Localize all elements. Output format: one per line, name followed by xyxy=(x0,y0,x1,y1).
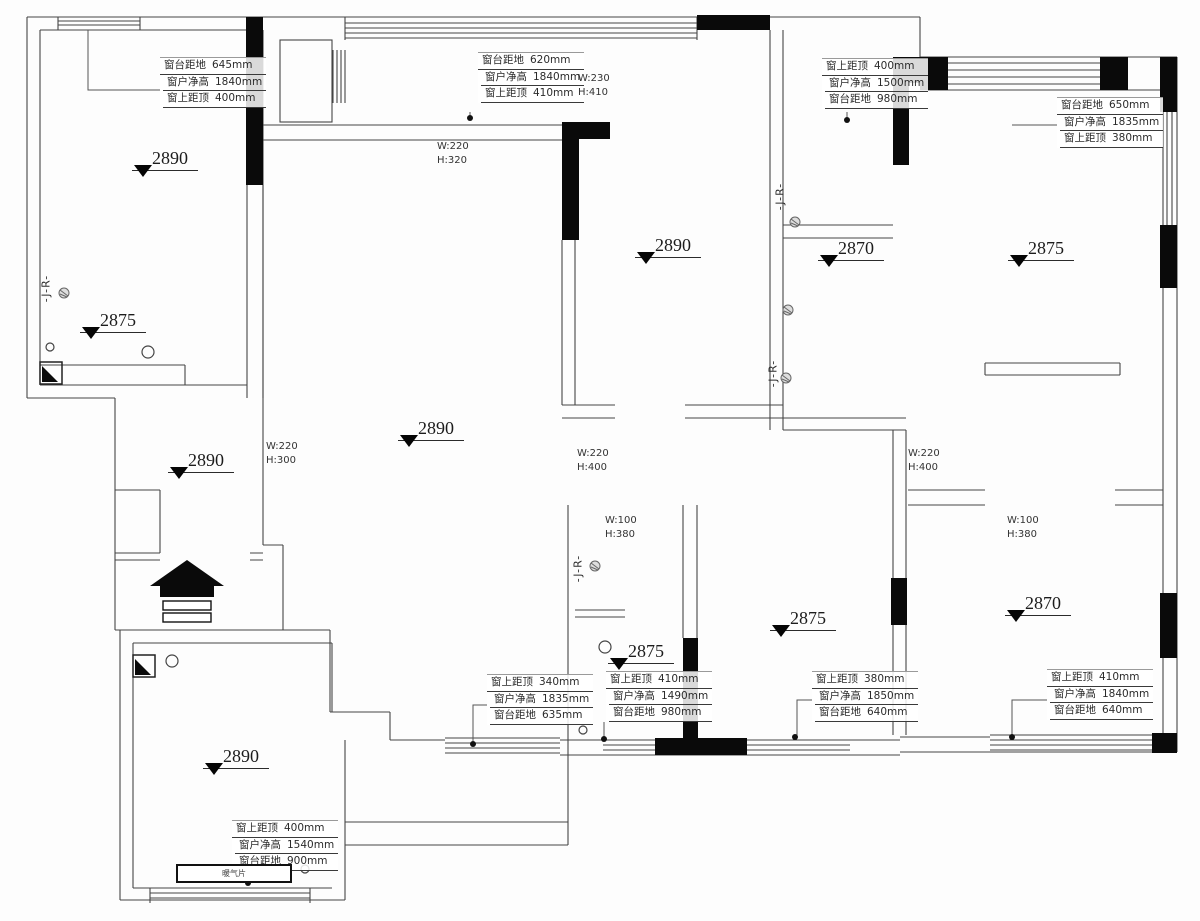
annotation-value: 410mm xyxy=(533,87,574,99)
ceiling-height-marker: 2870 xyxy=(1005,593,1071,616)
annotation-label: 窗台距地 xyxy=(482,54,524,66)
ceiling-height-marker: 2890 xyxy=(398,418,464,441)
annotation-label: 窗户净高 xyxy=(485,71,527,83)
ceiling-height-marker: 2890 xyxy=(203,746,269,769)
beam-width: W:220 xyxy=(437,141,469,152)
annotation-value: 980mm xyxy=(661,706,702,718)
jr-riser-symbol: -J-R- xyxy=(570,538,586,598)
window-annotation-top-right: 窗台距地650mm 窗户净高1835mm 窗上距顶380mm xyxy=(1057,97,1163,148)
annotation-value: 1850mm xyxy=(867,690,914,702)
window-annotation-bottom-study: 窗上距顶410mm 窗户净高1490mm 窗台距地980mm xyxy=(606,671,712,722)
window-annotation-top-left: 窗台距地645mm 窗户净高1840mm 窗上距顶400mm xyxy=(160,57,266,108)
window-annotation-bottom-right: 窗上距顶410mm 窗户净高1840mm 窗台距地640mm xyxy=(1047,669,1153,720)
ceiling-height-marker: 2890 xyxy=(132,148,198,171)
jr-riser-symbol: -J-R- xyxy=(765,343,781,403)
annotation-label: 窗户净高 xyxy=(1064,116,1106,128)
jr-label: -J-R- xyxy=(572,554,585,582)
beam-width: W:100 xyxy=(1007,515,1039,526)
entry-arrow-icon xyxy=(150,560,224,622)
annotation-value: 645mm xyxy=(212,59,253,71)
ceiling-height-marker: 2875 xyxy=(608,641,674,664)
elevation-triangle-icon xyxy=(610,658,628,670)
ceiling-height-marker: 2875 xyxy=(1008,238,1074,261)
annotation-label: 窗户净高 xyxy=(1054,688,1096,700)
beam-width: W:220 xyxy=(908,448,940,459)
annotation-label: 窗台距地 xyxy=(1061,99,1103,111)
ceiling-height-marker: 2875 xyxy=(80,310,146,333)
structural-walls xyxy=(246,15,1177,755)
elevation-triangle-icon xyxy=(1007,610,1025,622)
window-annotation-top-center: 窗台距地620mm 窗户净高1840mm 窗上距顶410mm xyxy=(478,52,584,103)
annotation-label: 窗上距顶 xyxy=(1064,132,1106,144)
annotation-label: 窗户净高 xyxy=(167,76,209,88)
annotation-label: 窗户净高 xyxy=(819,690,861,702)
window-annotation-bottom-center-left: 窗上距顶340mm 窗户净高1835mm 窗台距地635mm xyxy=(487,674,593,725)
beam-height: H:400 xyxy=(577,462,607,473)
beam-label: W:100H:380 xyxy=(605,514,637,541)
annotation-label: 窗上距顶 xyxy=(826,60,868,72)
annotation-label: 窗户净高 xyxy=(494,693,536,705)
annotation-value: 1500mm xyxy=(877,77,924,89)
radiator-fixture: 暖气片 xyxy=(176,864,292,883)
leader-dots xyxy=(245,115,1015,886)
beam-height: H:300 xyxy=(266,455,296,466)
elevation-triangle-icon xyxy=(205,763,223,775)
ceiling-height-marker: 2890 xyxy=(168,450,234,473)
beam-label: W:100H:380 xyxy=(1007,514,1039,541)
annotation-value: 400mm xyxy=(874,60,915,72)
elevation-triangle-icon xyxy=(820,255,838,267)
beam-label: W:220H:300 xyxy=(266,440,298,467)
annotation-value: 1540mm xyxy=(287,839,334,851)
annotation-label: 窗上距顶 xyxy=(1051,671,1093,683)
beam-label: W:220H:320 xyxy=(437,140,469,167)
window-annotation-bottom-left-room: 窗上距顶400mm 窗户净高1540mm 窗台距地900mm xyxy=(232,820,338,871)
annotation-value: 1840mm xyxy=(215,76,262,88)
annotation-value: 620mm xyxy=(530,54,571,66)
elevation-triangle-icon xyxy=(637,252,655,264)
elevation-triangle-icon xyxy=(82,327,100,339)
annotation-label: 窗上距顶 xyxy=(610,673,652,685)
annotation-label: 窗上距顶 xyxy=(816,673,858,685)
elevation-triangle-icon xyxy=(1010,255,1028,267)
beam-height: H:380 xyxy=(1007,529,1037,540)
jr-riser-symbol: -J-R- xyxy=(772,166,788,226)
beam-height: H:410 xyxy=(578,87,608,98)
annotation-value: 900mm xyxy=(287,855,328,867)
beam-width: W:220 xyxy=(577,448,609,459)
beam-label: W:220H:400 xyxy=(577,447,609,474)
floor-plan: 窗台距地645mm 窗户净高1840mm 窗上距顶400mm 窗台距地620mm… xyxy=(0,0,1200,921)
beam-label: W:220H:400 xyxy=(908,447,940,474)
annotation-value: 410mm xyxy=(658,673,699,685)
window-annotation-kitchen: 窗上距顶400mm 窗户净高1500mm 窗台距地980mm xyxy=(822,58,928,109)
annotation-label: 窗台距地 xyxy=(829,93,871,105)
beam-height: H:380 xyxy=(605,529,635,540)
annotation-value: 980mm xyxy=(877,93,918,105)
radiator-label: 暖气片 xyxy=(222,868,246,879)
annotation-value: 380mm xyxy=(1112,132,1153,144)
ceiling-height-marker: 2890 xyxy=(635,235,701,258)
annotation-value: 1840mm xyxy=(1102,688,1149,700)
annotation-value: 410mm xyxy=(1099,671,1140,683)
elevation-triangle-icon xyxy=(170,467,188,479)
annotation-value: 640mm xyxy=(867,706,908,718)
riser-circle-symbols xyxy=(59,217,800,571)
beam-width: W:220 xyxy=(266,441,298,452)
annotation-value: 340mm xyxy=(539,676,580,688)
drain-circle-symbols xyxy=(46,343,611,873)
annotation-value: 635mm xyxy=(542,709,583,721)
annotation-value: 640mm xyxy=(1102,704,1143,716)
beam-label: W:230H:410 xyxy=(578,72,610,99)
ceiling-height-marker: 2870 xyxy=(818,238,884,261)
jr-label: -J-R- xyxy=(774,182,787,210)
fixture-symbols xyxy=(40,217,800,873)
annotation-value: 1840mm xyxy=(533,71,580,83)
beam-height: H:400 xyxy=(908,462,938,473)
annotation-value: 400mm xyxy=(284,822,325,834)
annotation-label: 窗上距顶 xyxy=(485,87,527,99)
jr-riser-symbol: -J-R- xyxy=(38,258,54,318)
annotation-value: 400mm xyxy=(215,92,256,104)
annotation-label: 窗台距地 xyxy=(164,59,206,71)
beam-height: H:320 xyxy=(437,155,467,166)
elevation-triangle-icon xyxy=(772,625,790,637)
annotation-value: 1835mm xyxy=(1112,116,1159,128)
ceiling-height-marker: 2875 xyxy=(770,608,836,631)
elevation-triangle-icon xyxy=(400,435,418,447)
annotation-value: 1490mm xyxy=(661,690,708,702)
beam-width: W:100 xyxy=(605,515,637,526)
beam-width: W:230 xyxy=(578,73,610,84)
annotation-label: 窗上距顶 xyxy=(491,676,533,688)
annotation-label: 窗台距地 xyxy=(494,709,536,721)
window-annotation-bottom-middle: 窗上距顶380mm 窗户净高1850mm 窗台距地640mm xyxy=(812,671,918,722)
annotation-label: 窗户净高 xyxy=(239,839,281,851)
annotation-label: 窗台距地 xyxy=(1054,704,1096,716)
elevation-triangle-icon xyxy=(134,165,152,177)
annotation-label: 窗上距顶 xyxy=(236,822,278,834)
jr-label: -J-R- xyxy=(767,359,780,387)
annotation-label: 窗台距地 xyxy=(613,706,655,718)
annotation-label: 窗户净高 xyxy=(829,77,871,89)
annotation-label: 窗户净高 xyxy=(613,690,655,702)
annotation-value: 1835mm xyxy=(542,693,589,705)
jr-label: -J-R- xyxy=(40,274,53,302)
annotation-value: 380mm xyxy=(864,673,905,685)
annotation-label: 窗上距顶 xyxy=(167,92,209,104)
annotation-value: 650mm xyxy=(1109,99,1150,111)
annotation-label: 窗台距地 xyxy=(819,706,861,718)
